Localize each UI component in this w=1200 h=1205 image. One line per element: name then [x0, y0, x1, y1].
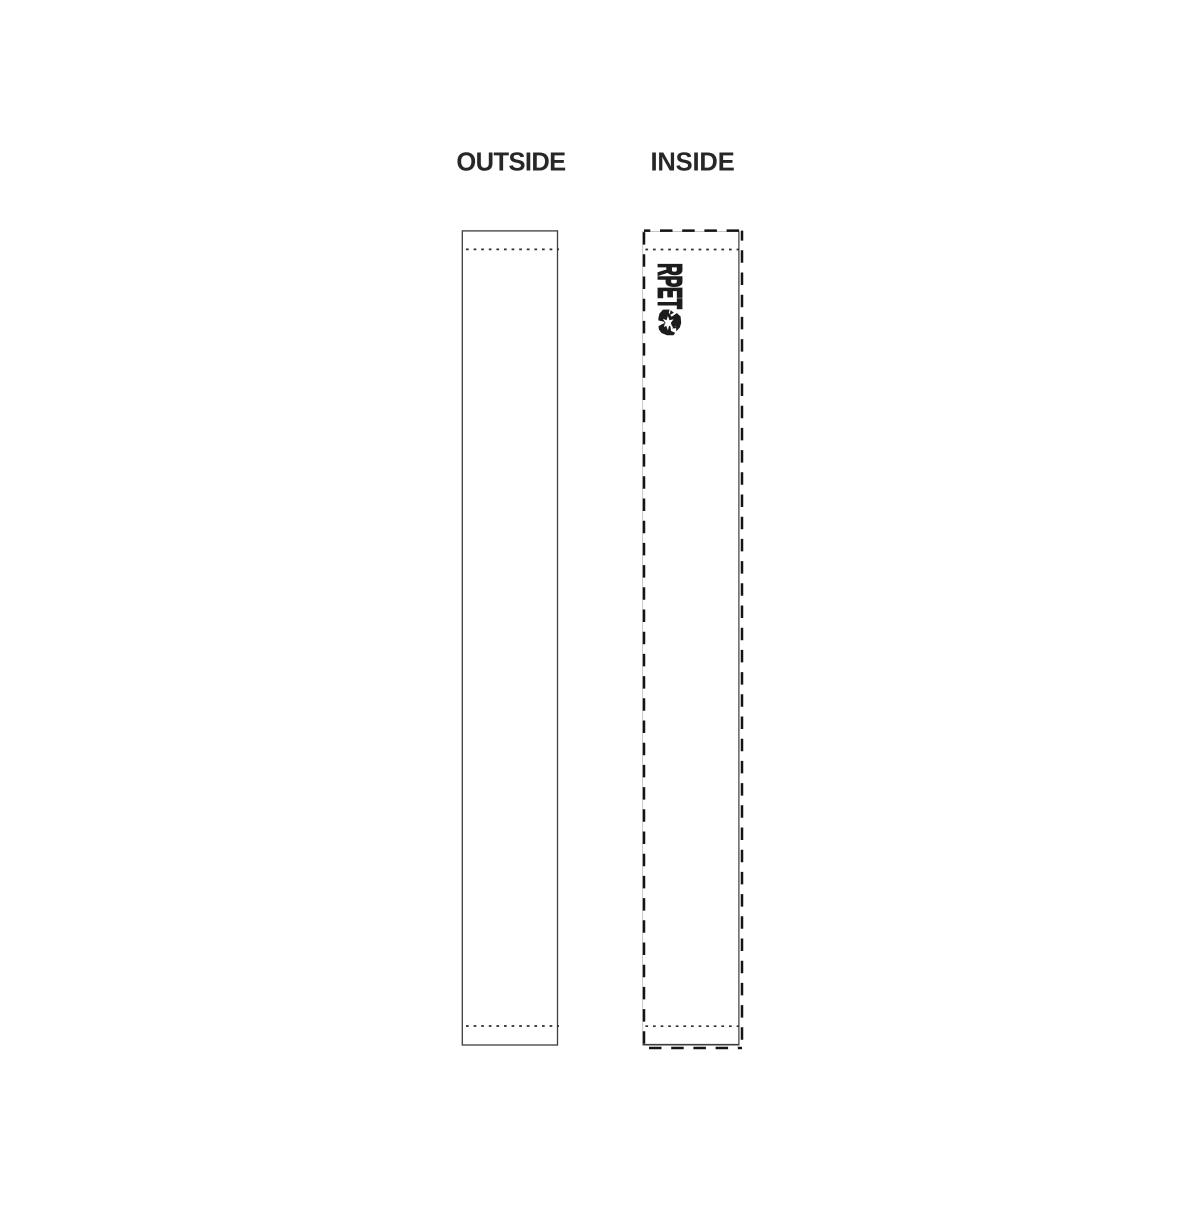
svg-text:OUTSIDE: OUTSIDE	[456, 149, 566, 177]
svg-text:RPET: RPET	[651, 263, 689, 309]
svg-text:INSIDE: INSIDE	[650, 149, 734, 177]
